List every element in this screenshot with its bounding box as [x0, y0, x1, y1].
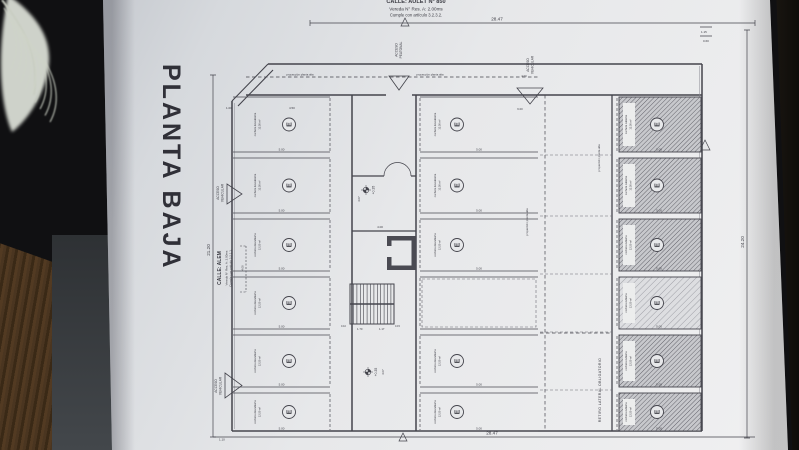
unit-depth-dim: 5.00: [656, 209, 662, 213]
dim-407: 4.07: [357, 196, 361, 202]
parking-symbol-letter: E: [286, 122, 293, 127]
access-line1: ACCESO: [526, 58, 530, 72]
unit-depth-dim: 5.00: [656, 325, 662, 329]
street-left-name: CALLE: ALEM: [217, 251, 223, 285]
unit-area-label: 12.50 m²: [629, 298, 633, 308]
unit-type-label: cochera descubierta: [253, 349, 257, 373]
unit-type-label: cochera descubierta: [433, 233, 437, 257]
access-line1: ACCESO: [214, 379, 218, 393]
unit-area-label: 12.50 m²: [438, 356, 442, 366]
parking-symbol-letter: E: [654, 183, 661, 188]
unit-area-label: 12.50 m²: [438, 180, 442, 190]
parking-unit: Ecochera descubierta12.50 m²5.00: [233, 158, 330, 213]
unit-area-label: 12.50 m²: [258, 298, 262, 308]
photo-of-floorplan: PLANTA BAJA CALLE: AULET N° 850 Vereda N…: [0, 0, 799, 450]
unit-type-label: cochera cubierta: [624, 235, 628, 255]
parking-unit: Ecochera cubierta12.50 m²5.00: [617, 97, 701, 152]
upper-floor-projection-lines: [246, 77, 612, 431]
dim-100: 1.00: [226, 106, 232, 110]
parking-symbol-letter: E: [286, 242, 293, 247]
street-top-label: CALLE: AULET N° 850 Vereda N° Res. A: 2.…: [386, 0, 445, 18]
dim-400-access: 4.00: [521, 74, 527, 78]
dim-left-total: 21.20: [206, 244, 211, 256]
parking-symbol-letter: E: [654, 242, 661, 247]
parking-symbol-letter: E: [454, 242, 461, 247]
arrow-down-icon: [389, 76, 409, 90]
dim-600-access: 6.00: [517, 107, 523, 111]
sheet-title: PLANTA BAJA: [157, 64, 185, 271]
unit-depth-dim: 5.00: [656, 267, 662, 271]
parking-symbol-letter: E: [654, 300, 661, 305]
unit-type-label: cochera descubierta: [433, 349, 437, 373]
projection-label-1: proyección planta alta: [286, 73, 314, 77]
unit-area-label: 12.50 m²: [258, 240, 262, 250]
level-marker-lower: [363, 367, 373, 377]
unit-type-label: cochera cubierta: [624, 175, 628, 195]
unit-type-label: cochera descubierta: [253, 400, 257, 424]
parking-symbol-letter: E: [454, 358, 461, 363]
parking-unit: Ecochera descubierta12.50 m²5.00: [420, 97, 538, 152]
access-vehicular-top-left: ACCESO VEHICULAR: [216, 183, 242, 204]
dim-450: 4.50: [289, 106, 295, 110]
unit-depth-dim: 5.00: [279, 209, 285, 213]
unit-depth-dim: 5.00: [279, 325, 285, 329]
unit-depth-dim: 5.00: [656, 148, 662, 152]
unit-area-label: 12.50 m²: [438, 240, 442, 250]
parking-unit: Ecochera descubierta12.50 m²5.00: [420, 219, 538, 271]
parking-symbol-letter: E: [286, 183, 293, 188]
access-line1: ACCESO: [395, 43, 399, 57]
level-marker-upper: [361, 185, 371, 195]
parking-unit: Ecochera descubierta12.50 m²5.00: [233, 335, 330, 387]
parking-symbol-letter: E: [654, 122, 661, 127]
parking-units: Ecochera descubierta12.50 m²5.00Ecochera…: [233, 97, 701, 431]
parking-unit: Ecochera cubierta12.50 m²5.00: [617, 158, 701, 213]
arrow-down-icon: [517, 88, 543, 104]
unit-depth-dim: 5.00: [476, 209, 482, 213]
unit-area-label: 12.50 m²: [629, 240, 633, 250]
dim-015: 0.15: [395, 325, 400, 328]
street-top-sidewalk: Vereda N° Res. A: 2.00ms: [389, 7, 443, 12]
parking-unit: [420, 277, 538, 329]
parking-unit: Ecochera descubierta12.50 m²5.00: [233, 97, 330, 152]
parking-unit: Ecochera cubierta12.50 m²5.00: [617, 335, 701, 387]
access-line2: VEHICULAR: [531, 55, 535, 74]
parking-unit: Ecochera descubierta12.50 m²5.00: [233, 277, 330, 329]
unit-depth-dim: 5.00: [476, 383, 482, 387]
dim-400-alem: 4.00: [241, 265, 245, 271]
unit-area-label: 12.50 m²: [629, 180, 633, 190]
parking-symbol-letter: E: [454, 122, 461, 127]
access-line2: VEHICULAR: [221, 183, 225, 202]
unit-area-label: 12.50 m²: [629, 119, 633, 129]
access-peatonal-top: ACCESO PEATONAL: [389, 41, 409, 90]
unit-depth-dim: 5.00: [279, 427, 285, 431]
dim-right-total: 24.20: [740, 236, 745, 248]
unit-type-label: cochera descubierta: [253, 112, 257, 136]
unit-type-label: cochera descubierta: [253, 173, 257, 197]
parking-symbol-letter: E: [654, 358, 661, 363]
parking-symbol-letter: E: [454, 183, 461, 188]
unit-type-label: cochera descubierta: [433, 400, 437, 424]
unit-depth-dim: 5.00: [279, 148, 285, 152]
parking-symbol-letter: E: [654, 409, 661, 414]
unit-area-label: 12.50 m²: [438, 407, 442, 417]
core: 1.70 1.17 0.10 0.15 4.00 +0.35 4.07 +0.3…: [341, 95, 416, 431]
dim-117: 1.17: [379, 327, 385, 331]
open-court-area: [422, 279, 536, 327]
parking-unit: Ecochera descubierta12.50 m²5.00: [420, 335, 538, 387]
unit-depth-dim: 5.00: [279, 383, 285, 387]
projection-label-4: proyección planta alta: [597, 144, 601, 172]
entrance-double-door: [384, 163, 411, 177]
unit-depth-dim: 5.00: [279, 267, 285, 271]
plan-drawing: PLANTA BAJA CALLE: AULET N° 850 Vereda N…: [0, 0, 799, 450]
unit-depth-dim: 5.00: [476, 148, 482, 152]
unit-area-label: 12.50 m²: [629, 356, 633, 366]
access-vehicular-bottom-left: ACCESO VEHICULAR: [214, 373, 242, 398]
parking-unit: Ecochera cubierta12.50 m²5.00: [617, 277, 701, 329]
parking-unit: Ecochera descubierta12.50 m²5.00: [233, 219, 330, 271]
dim-115: 1.15: [701, 30, 707, 34]
unit-type-label: cochera descubierta: [433, 173, 437, 197]
access-line2: PEATONAL: [399, 41, 403, 58]
parking-unit: Ecochera descubierta12.50 m²5.00: [420, 158, 538, 213]
staircase: [350, 284, 394, 324]
unit-area-label: 12.50 m²: [438, 119, 442, 129]
dim-170: 1.70: [357, 327, 363, 331]
unit-area-label: 12.50 m²: [629, 407, 633, 417]
unit-type-label: cochera cubierta: [624, 293, 628, 313]
parking-symbol-letter: E: [286, 358, 293, 363]
parking-unit: Ecochera cubierta12.50 m²5.00: [617, 219, 701, 271]
street-top-ordinance: Cumple con artículo 3.2.3.2.: [390, 13, 442, 18]
access-line1: ACCESO: [216, 186, 220, 200]
unit-type-label: cochera descubierta: [253, 233, 257, 257]
dim-060: 0.60: [703, 39, 709, 43]
projection-label-2: proyección planta alta: [416, 73, 444, 77]
parking-symbol-letter: E: [286, 409, 293, 414]
dim-010: 0.10: [341, 325, 346, 328]
unit-type-label: cochera descubierta: [433, 112, 437, 136]
unit-area-label: 12.50 m²: [258, 407, 262, 417]
unit-area-label: 12.50 m²: [258, 180, 262, 190]
level-text-lower: +0.35: [374, 368, 378, 377]
access-line2: VEHICULAR: [219, 376, 223, 395]
parking-symbol-letter: E: [286, 300, 293, 305]
feather: [1, 0, 56, 132]
dim-110: 1.10: [219, 438, 225, 442]
parking-unit: Ecochera descubierta12.50 m²5.00: [233, 393, 330, 431]
unit-depth-dim: 5.00: [656, 427, 662, 431]
level-text-upper: +0.35: [372, 186, 376, 195]
unit-type-label: cochera descubierta: [253, 291, 257, 315]
parking-unit: Ecochera cubierta12.50 m²5.00: [617, 393, 701, 431]
dim-407-lower: 4.07: [381, 369, 385, 375]
dim-400-hall: 4.00: [377, 225, 383, 229]
unit-depth-dim: 5.00: [476, 427, 482, 431]
arrow-right-icon: [225, 373, 242, 398]
unit-type-label: cochera cubierta: [624, 402, 628, 422]
street-top-name: CALLE: AULET N° 850: [386, 0, 445, 5]
street-left-ordinance: Cumple con artículo 3.2.1.1.: [229, 249, 233, 287]
unit-depth-dim: 5.00: [656, 383, 662, 387]
parking-unit: Ecochera descubierta12.50 m²5.00: [420, 393, 538, 431]
unit-type-label: cochera cubierta: [624, 351, 628, 371]
unit-area-label: 12.50 m²: [258, 356, 262, 366]
street-left-label: CALLE: ALEM Vereda N° Res. A: 2.00ms Cum…: [217, 246, 246, 292]
unit-depth-dim: 5.00: [476, 267, 482, 271]
unit-area-label: 12.50 m²: [258, 119, 262, 129]
projection-label-3: proyección planta alta: [525, 208, 529, 236]
parking-symbol-letter: E: [454, 409, 461, 414]
dim-top-total: 28.47: [491, 17, 503, 22]
unit-type-label: cochera cubierta: [624, 114, 628, 134]
